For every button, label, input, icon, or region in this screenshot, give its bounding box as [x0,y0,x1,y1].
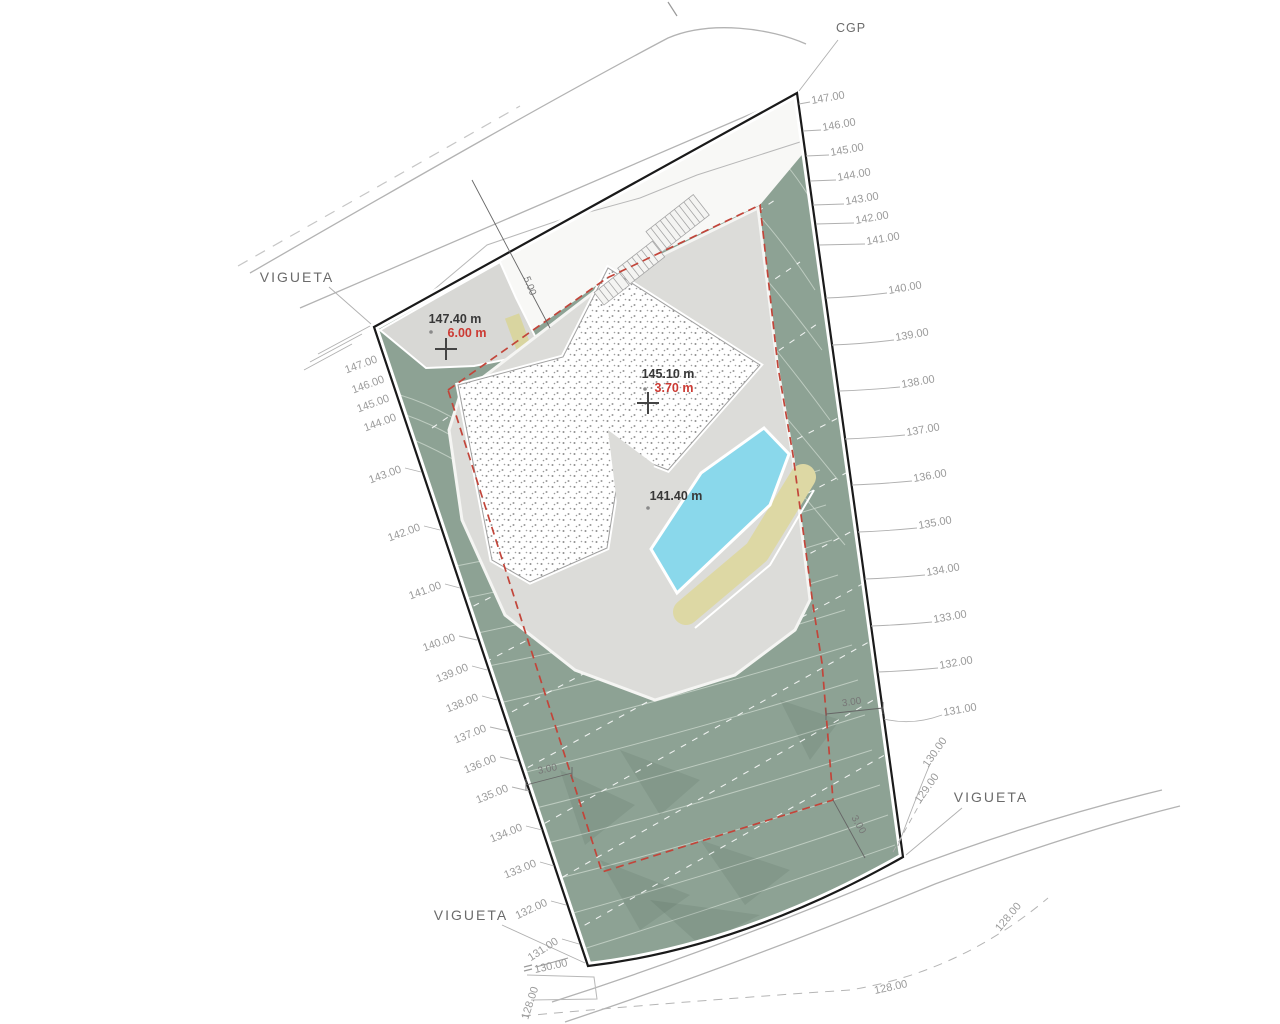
contour-label: 146.00 [821,116,856,134]
contour-label: 133.00 [932,608,967,626]
vigueta-label: VIGUETA [260,269,334,285]
contour-label: 136.00 [462,753,498,777]
site-plan-canvas: 5.00 3.00 3.00 3.00 147.40 m 6.00 m 145.… [0,0,1280,1024]
contour-label: 132.00 [938,654,973,672]
spot-dot [643,387,647,391]
contour-label: 147.00 [810,89,845,107]
contour-label: 135.00 [474,783,510,807]
contour-label: 141.00 [865,230,900,248]
spot-elevation-label: 141.40 m [650,489,703,503]
contour-label: 128.00 [993,900,1024,933]
contour-label: 141.00 [407,580,443,603]
spot-dot [646,506,650,510]
spot-elevation-label: 147.40 m [429,312,482,326]
vigueta-left-callout: VIGUETA [260,269,371,324]
contour-label: 146.00 [350,374,386,397]
site-plan-drawing: 5.00 3.00 3.00 3.00 147.40 m 6.00 m 145.… [0,0,1280,1024]
vigueta-label: VIGUETA [434,907,508,923]
contour-label: 130.00 [921,735,950,769]
contour-label: 136.00 [912,467,947,485]
contour-label: 128.00 [519,985,541,1021]
contour-label: 134.00 [488,822,524,846]
contour-label: 147.00 [343,354,379,377]
contour-label: 129.00 [913,771,942,805]
vigueta-label: VIGUETA [954,789,1028,805]
contour-label: 132.00 [514,897,550,922]
contour-label: 135.00 [917,514,952,532]
contour-label: 138.00 [444,692,480,716]
vigueta-bottom-callout: VIGUETA [434,907,585,963]
contour-label: 139.00 [434,662,470,686]
contour-label: 138.00 [900,373,935,391]
survey-tick [668,2,677,16]
contour-label: 143.00 [844,190,879,208]
contour-label: 140.00 [421,632,457,655]
contour-label: 128.00 [873,978,908,997]
contour-label: 142.00 [386,522,422,545]
contour-label: 131.00 [942,701,977,719]
contour-label: 144.00 [362,412,398,435]
contour-label: 137.00 [452,723,488,747]
contour-label: 144.00 [836,166,871,184]
spot-setback-label: 6.00 m [448,326,487,340]
contour-label: 143.00 [367,464,403,487]
contour-label: 140.00 [887,279,922,297]
contour-label: 134.00 [925,561,960,579]
spot-setback-label: 3.70 m [655,381,694,395]
contour-label: 137.00 [905,421,940,439]
contour-label: 139.00 [894,326,929,344]
contour-label: 145.00 [829,141,864,159]
contour-label: 142.00 [854,209,889,227]
spot-elevation-label: 145.10 m [642,367,695,381]
cgp-callout: CGP [799,21,866,91]
spot-dot [429,330,433,334]
contour-label: 145.00 [355,393,391,416]
cgp-label: CGP [836,21,866,35]
contour-label: 133.00 [502,858,538,882]
